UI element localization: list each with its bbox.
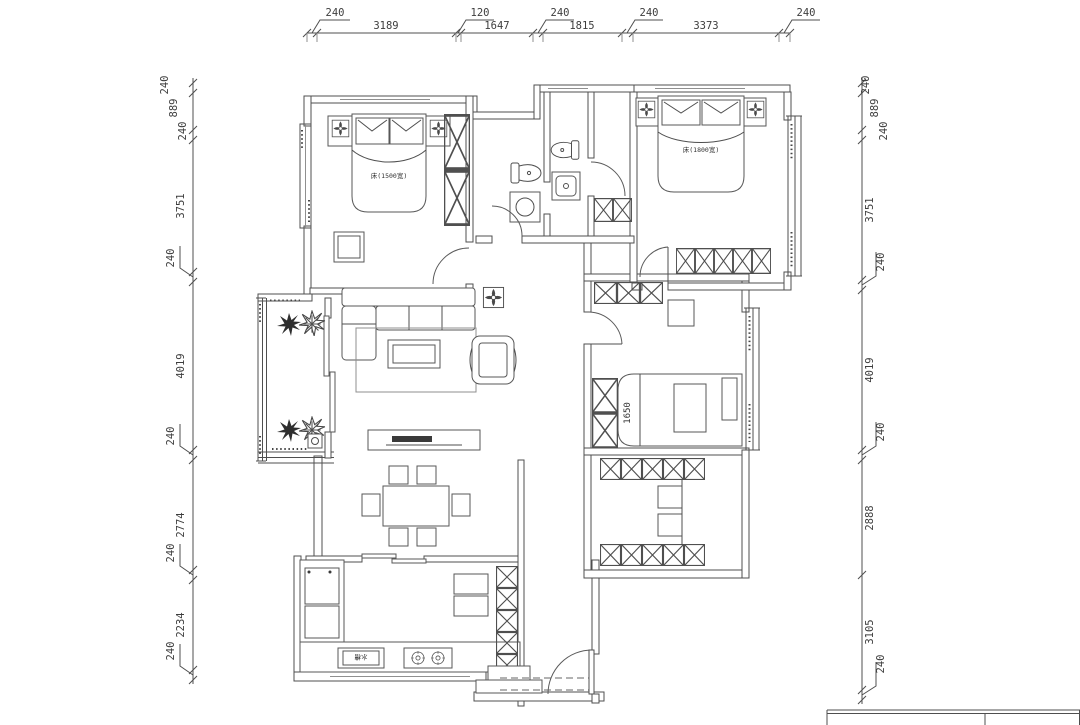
dim-left-889: 889: [168, 99, 180, 118]
cabinet-row-icon: [601, 459, 705, 480]
dim-left-2774: 2774: [175, 512, 187, 537]
room-bedroom-middle: 1650: [589, 283, 742, 448]
armchair-icon: [470, 336, 516, 384]
entry-step: [476, 680, 542, 693]
dim-top-120: 120: [471, 7, 490, 19]
room-bedroom-left: 床(1500宽): [328, 114, 469, 284]
dim-right-4019: 4019: [864, 357, 876, 382]
window-balcony-bottom: [258, 452, 334, 463]
dining-chair-icon: [362, 494, 380, 516]
dim-top-3189: 3189: [373, 20, 398, 32]
dim-right-889: 889: [869, 99, 881, 118]
dimension-row-top: 240 3189 120 1647 240 1815 240 3373 240: [303, 7, 820, 42]
nightstand-icon: [744, 98, 766, 126]
door-arc-vestibule: [591, 162, 625, 196]
dim-top-1815: 1815: [569, 20, 594, 32]
tv-console-icon: [368, 430, 480, 450]
bay-window-master: [786, 116, 802, 276]
dim-left-240f: 240: [165, 642, 177, 661]
dim-right-240d: 240: [875, 423, 887, 442]
wardrobe-icon: [595, 283, 663, 304]
wardrobe-icon: [593, 379, 618, 447]
dim-right-240c: 240: [875, 253, 887, 272]
plant-icon: [299, 311, 325, 336]
dining-table-icon: [383, 486, 449, 526]
room-study: [601, 459, 705, 566]
dim-right-240b: 240: [878, 122, 890, 141]
sliding-door-kitchen: [362, 554, 426, 563]
dim-right-3105: 3105: [864, 619, 876, 644]
dim-top-240a: 240: [326, 7, 345, 19]
dimension-col-left: 240 889 240 3751 240 4019 240 2774 240 2…: [159, 76, 197, 684]
dim-right-240e: 240: [875, 655, 887, 674]
dim-left-240a: 240: [159, 76, 171, 95]
bed-icon-middle: 1650: [618, 374, 742, 446]
nightstand-icon: [668, 300, 694, 326]
kitchen-sink-icon: 水槽: [338, 648, 384, 668]
bed-icon-small: 床(1500宽): [352, 114, 426, 212]
room-living: [342, 287, 516, 450]
bed-large-label: 床(1800宽): [683, 145, 719, 154]
fridge-icon: [454, 574, 488, 616]
entry-door-leaf: [589, 650, 594, 694]
tv-icon: [392, 436, 432, 442]
stove-icon: [404, 648, 452, 668]
room-bathroom: [492, 141, 632, 236]
dim-left-3751: 3751: [175, 193, 187, 218]
dim-top-240c: 240: [640, 7, 659, 19]
floor-plan-page: 240 3189 120 1647 240 1815 240 3373 240 …: [0, 0, 1080, 725]
dim-left-2234: 2234: [175, 612, 187, 637]
desk-chair-icon: [658, 514, 682, 536]
floor-plan-canvas: 240 3189 120 1647 240 1815 240 3373 240 …: [0, 0, 1080, 725]
dim-right-2888: 2888: [864, 505, 876, 530]
dining-chair-icon: [417, 528, 436, 546]
bed-icon-large: 床(1800宽): [658, 96, 744, 192]
room-balcony: [270, 301, 325, 450]
plant-icon: [277, 313, 301, 336]
sliding-door-balcony: [324, 298, 335, 458]
dim-left-240b: 240: [177, 122, 189, 141]
washing-machine-icon: [510, 192, 540, 222]
side-table-icon: [334, 232, 364, 262]
dim-left-240e: 240: [165, 544, 177, 563]
toilet-icon: [551, 141, 579, 159]
door-arc-bedroom-middle: [589, 312, 622, 344]
shower-icon: [552, 172, 580, 200]
room-kitchen: 水槽: [300, 560, 520, 675]
dining-chair-icon: [389, 528, 408, 546]
dim-top-240d: 240: [797, 7, 816, 19]
dim-right-240a: 240: [860, 76, 872, 95]
wardrobe-icon: [676, 249, 770, 274]
dim-top-3373: 3373: [693, 20, 718, 32]
title-block: [827, 710, 1080, 725]
cabinet-row-icon: [601, 545, 705, 566]
bed-middle-width-label: 1650: [623, 402, 633, 424]
window-balcony-left: [256, 298, 267, 461]
nightstand-icon: [328, 116, 352, 146]
dining-chair-icon: [417, 466, 436, 484]
dimension-col-right: 240 889 240 3751 240 4019 240 2888 3105 …: [858, 76, 890, 704]
desk-chair-icon: [658, 486, 682, 508]
floor-drain-icon: [308, 434, 322, 448]
duct-shaft-icon: [594, 199, 631, 222]
door-arc-bedroom-left: [433, 248, 469, 284]
bed-small-label: 床(1500宽): [371, 171, 407, 180]
coffee-table-icon: [388, 340, 440, 368]
dim-top-240b: 240: [551, 7, 570, 19]
room-dining: [362, 466, 470, 546]
entry-door-arc: [548, 650, 592, 694]
ceiling-lamp-icon: [483, 287, 503, 307]
room-master-bedroom: 床(1800宽): [636, 96, 771, 283]
bay-window-bedroom-middle: [744, 308, 760, 450]
plant-icon: [277, 419, 301, 442]
toilet-icon: [511, 163, 541, 183]
dim-left-4019: 4019: [175, 353, 187, 378]
dining-chair-icon: [452, 494, 470, 516]
dim-right-3751: 3751: [864, 197, 876, 222]
window-bedroom-left-side: [300, 124, 311, 228]
dining-chair-icon: [389, 466, 408, 484]
kitchen-sink-label: 水槽: [354, 653, 368, 662]
dim-top-1647: 1647: [484, 20, 509, 32]
nightstand-icon: [636, 98, 658, 126]
door-arc-master: [640, 247, 668, 277]
dim-left-240d: 240: [165, 427, 177, 446]
dim-left-240c: 240: [165, 249, 177, 268]
